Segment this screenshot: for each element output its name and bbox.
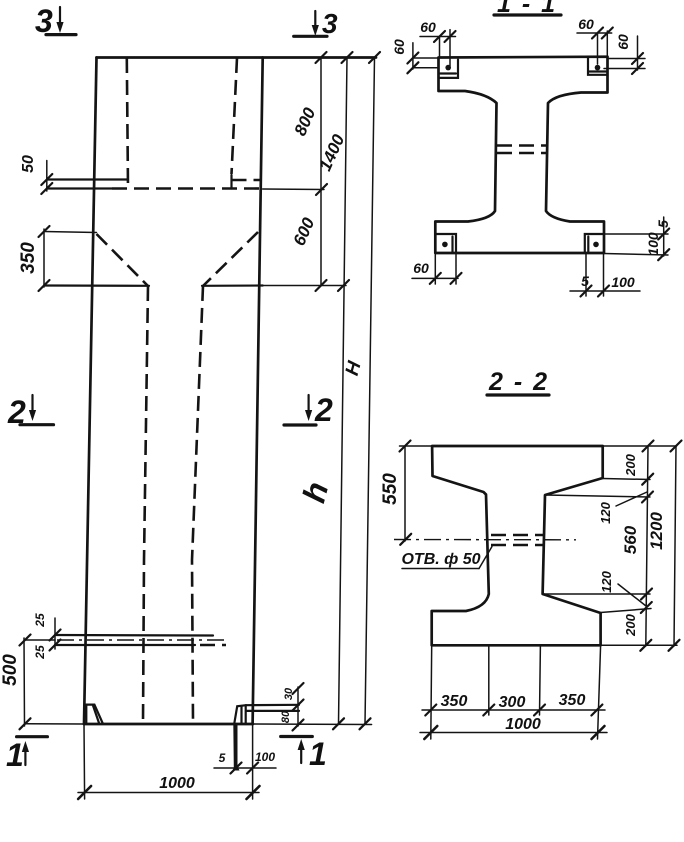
svg-text:100: 100	[255, 750, 275, 764]
svg-text:560: 560	[621, 525, 640, 554]
svg-text:350: 350	[441, 693, 468, 710]
svg-text:60: 60	[391, 39, 407, 55]
svg-text:2 - 2: 2 - 2	[488, 368, 549, 396]
svg-text:100: 100	[611, 274, 635, 290]
svg-text:350: 350	[559, 692, 586, 709]
svg-text:60: 60	[420, 19, 436, 35]
svg-text:120: 120	[598, 501, 613, 523]
svg-text:5: 5	[581, 273, 589, 289]
svg-text:80: 80	[280, 710, 292, 723]
svg-text:1: 1	[309, 736, 327, 772]
svg-text:1000: 1000	[505, 716, 541, 733]
svg-text:ОТВ. ф 50: ОТВ. ф 50	[401, 551, 480, 568]
svg-text:5: 5	[219, 751, 226, 765]
svg-text:300: 300	[499, 694, 526, 711]
svg-text:120: 120	[599, 570, 614, 592]
svg-text:550: 550	[380, 473, 401, 505]
svg-text:3: 3	[322, 8, 338, 39]
svg-text:100: 100	[645, 232, 661, 256]
svg-text:2: 2	[314, 392, 333, 428]
svg-text:25: 25	[33, 613, 47, 628]
svg-text:200: 200	[623, 613, 638, 636]
svg-text:60: 60	[413, 260, 429, 276]
svg-text:60: 60	[578, 16, 594, 32]
svg-text:30: 30	[283, 687, 295, 700]
svg-text:60: 60	[615, 34, 631, 50]
svg-text:50: 50	[20, 155, 37, 173]
svg-text:350: 350	[18, 242, 39, 274]
svg-text:1000: 1000	[159, 775, 195, 792]
svg-text:1: 1	[6, 737, 24, 773]
svg-text:200: 200	[623, 453, 638, 476]
svg-text:5: 5	[655, 220, 671, 228]
svg-text:1200: 1200	[647, 512, 666, 550]
svg-text:500: 500	[0, 654, 21, 686]
svg-text:25: 25	[33, 645, 47, 660]
